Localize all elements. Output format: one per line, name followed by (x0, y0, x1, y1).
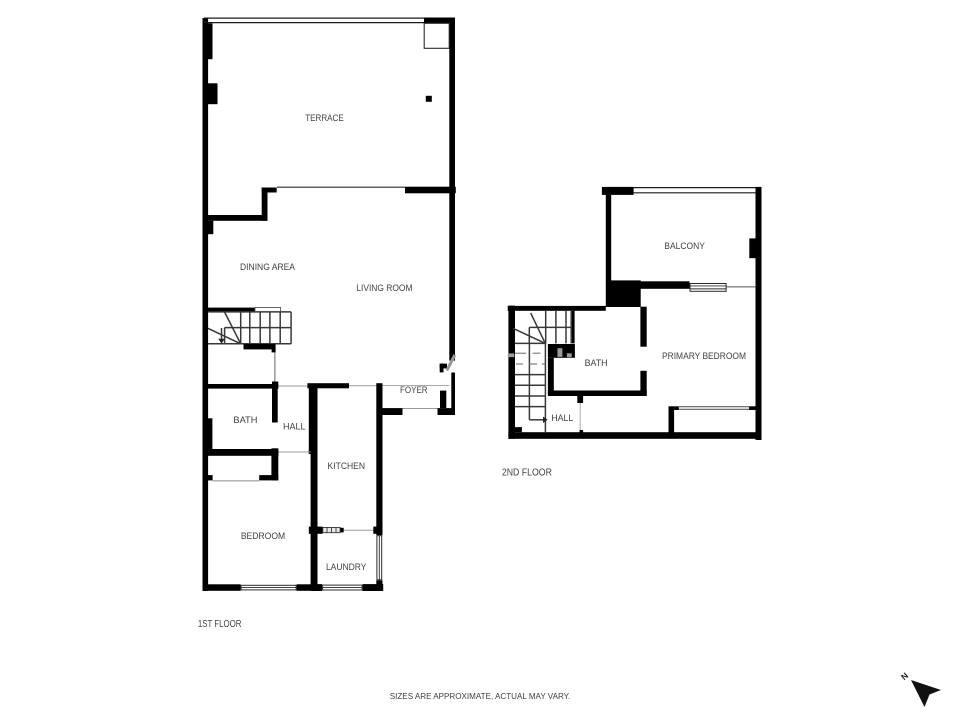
svg-text:BATH: BATH (585, 358, 608, 368)
svg-text:LIVING ROOM: LIVING ROOM (356, 283, 412, 293)
svg-text:DINING AREA: DINING AREA (240, 262, 296, 272)
svg-text:SIZES ARE APPROXIMATE, ACTUAL: SIZES ARE APPROXIMATE, ACTUAL MAY VARY. (390, 691, 571, 701)
svg-text:KITCHEN: KITCHEN (328, 461, 366, 471)
svg-text:PRIMARY BEDROOM: PRIMARY BEDROOM (662, 351, 746, 361)
svg-text:BEDROOM: BEDROOM (241, 531, 285, 541)
svg-text:LAUNDRY: LAUNDRY (326, 562, 367, 572)
svg-text:BATH: BATH (233, 415, 257, 425)
svg-text:BALCONY: BALCONY (664, 241, 705, 251)
svg-text:FOYER: FOYER (400, 385, 428, 395)
svg-text:TERRACE: TERRACE (305, 113, 344, 123)
svg-text:HALL: HALL (283, 421, 306, 431)
svg-text:2ND FLOOR: 2ND FLOOR (502, 468, 552, 479)
svg-text:1ST FLOOR: 1ST FLOOR (198, 619, 242, 630)
svg-text:HALL: HALL (551, 413, 573, 423)
